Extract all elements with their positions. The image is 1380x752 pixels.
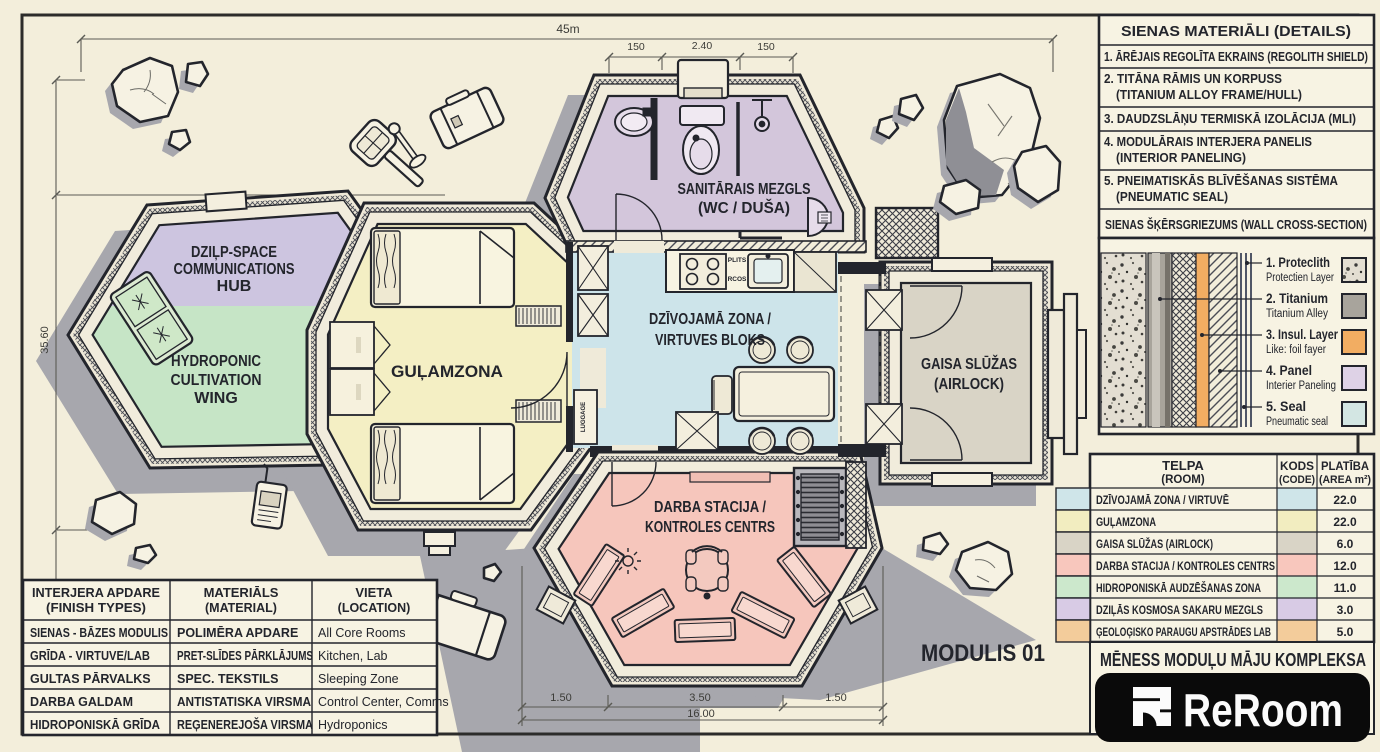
svg-text:DARBA STACIJA / KONTROLES CENT: DARBA STACIJA / KONTROLES CENTRS — [1096, 559, 1275, 573]
svg-text:GAISA SLŪŽAS (AIRLOCK): GAISA SLŪŽAS (AIRLOCK) — [1096, 536, 1213, 551]
svg-text:DZIĻP-SPACE: DZIĻP-SPACE — [191, 244, 277, 261]
svg-text:KONTROLES CENTRS: KONTROLES CENTRS — [645, 519, 775, 536]
svg-text:PLITS: PLITS — [728, 257, 747, 264]
svg-text:REĢENEREJOŠA VIRSMA: REĢENEREJOŠA VIRSMA — [177, 717, 313, 732]
svg-text:SIENAS - BĀZES MODULIS: SIENAS - BĀZES MODULIS — [30, 626, 168, 640]
svg-text:SIENAS ŠĶĒRSGRIEZUMS (WALL CRO: SIENAS ŠĶĒRSGRIEZUMS (WALL CROSS-SECTION… — [1105, 217, 1367, 232]
svg-text:HIDROPONISKĀ AUDZĒŠANAS ZONA: HIDROPONISKĀ AUDZĒŠANAS ZONA — [1096, 580, 1261, 595]
svg-text:(LOCATION): (LOCATION) — [338, 601, 411, 615]
svg-text:4. MODULĀRAIS INTERJERA PANELI: 4. MODULĀRAIS INTERJERA PANELIS — [1104, 135, 1312, 149]
svg-text:CULTIVATION: CULTIVATION — [171, 372, 262, 389]
svg-text:(ROOM): (ROOM) — [1161, 474, 1205, 486]
svg-text:PLATĪBA: PLATĪBA — [1321, 459, 1369, 473]
svg-text:WING: WING — [194, 390, 238, 407]
svg-text:GUĻAMZONA: GUĻAMZONA — [391, 362, 503, 381]
svg-text:MĒNESS MODUĻU MĀJU KOMPLEKSA: MĒNESS MODUĻU MĀJU KOMPLEKSA — [1100, 650, 1366, 670]
svg-text:4. Panel: 4. Panel — [1266, 363, 1312, 378]
svg-text:(INTERIOR PANELING): (INTERIOR PANELING) — [1116, 151, 1246, 165]
svg-text:COMMUNICATIONS: COMMUNICATIONS — [174, 261, 295, 278]
svg-text:2. TITĀNA RĀMIS UN KORPUSS: 2. TITĀNA RĀMIS UN KORPUSS — [1104, 72, 1282, 86]
svg-text:Hydroponics: Hydroponics — [318, 718, 387, 732]
svg-text:MODULIS 01: MODULIS 01 — [921, 640, 1045, 667]
svg-text:SANITĀRAIS MEZGLS: SANITĀRAIS MEZGLS — [678, 181, 811, 198]
svg-text:12.0: 12.0 — [1333, 559, 1357, 573]
svg-text:5. Seal: 5. Seal — [1266, 399, 1306, 414]
svg-text:5. PNEIMATISKĀS BLĪVĒŠANAS SIS: 5. PNEIMATISKĀS BLĪVĒŠANAS SISTĒMA — [1104, 173, 1338, 188]
svg-text:Pneumatic seal: Pneumatic seal — [1266, 416, 1328, 428]
svg-text:DZĪVOJAMĀ ZONA /: DZĪVOJAMĀ ZONA / — [649, 311, 772, 328]
svg-text:1. Proteclith: 1. Proteclith — [1266, 255, 1330, 270]
svg-text:(FINISH TYPES): (FINISH TYPES) — [46, 601, 146, 615]
svg-text:GUĻAMZONA: GUĻAMZONA — [1096, 515, 1156, 529]
svg-text:3. Insul. Layer: 3. Insul. Layer — [1266, 327, 1339, 342]
svg-text:HYDROPONIC: HYDROPONIC — [171, 353, 261, 370]
svg-text:VIETA: VIETA — [355, 585, 393, 600]
svg-text:45m: 45m — [556, 22, 579, 36]
svg-text:(PNEUMATIC SEAL): (PNEUMATIC SEAL) — [1116, 190, 1228, 204]
svg-text:LUGGAGE: LUGGAGE — [581, 402, 587, 432]
svg-text:(WC / DUŠA): (WC / DUŠA) — [698, 199, 790, 217]
svg-text:16.00: 16.00 — [687, 708, 715, 720]
svg-text:Interier Paneling: Interier Paneling — [1266, 380, 1336, 392]
svg-text:DZIĻĀS KOSMOSA SAKARU MEZGLS: DZIĻĀS KOSMOSA SAKARU MEZGLS — [1096, 603, 1263, 617]
svg-text:Titanium Alley: Titanium Alley — [1266, 308, 1328, 320]
svg-text:3.0: 3.0 — [1337, 603, 1354, 617]
svg-text:Control Center, Comms: Control Center, Comms — [318, 695, 449, 709]
svg-text:150: 150 — [627, 41, 645, 53]
svg-text:Kitchen, Lab: Kitchen, Lab — [318, 649, 388, 663]
svg-text:35.60: 35.60 — [39, 326, 51, 354]
svg-text:GULTAS PĀRVALKS: GULTAS PĀRVALKS — [30, 672, 151, 686]
svg-text:2. Titanium: 2. Titanium — [1266, 291, 1328, 306]
svg-text:PRET-SLĪDES PĀRKLĀJUMS: PRET-SLĪDES PĀRKLĀJUMS — [177, 649, 313, 663]
svg-text:3. DAUDZSLĀŅU TERMISKĀ IZOLĀCI: 3. DAUDZSLĀŅU TERMISKĀ IZOLĀCIJA (MLI) — [1104, 112, 1356, 126]
svg-text:22.0: 22.0 — [1333, 515, 1357, 529]
svg-text:HIDROPONISKĀ GRĪDA: HIDROPONISKĀ GRĪDA — [30, 718, 160, 732]
svg-text:GRĪDA - VIRTUVE/LAB: GRĪDA - VIRTUVE/LAB — [30, 649, 150, 663]
svg-text:ANTISTATISKA VIRSMA: ANTISTATISKA VIRSMA — [177, 695, 311, 709]
svg-text:Protectien Layer: Protectien Layer — [1266, 272, 1334, 284]
svg-text:11.0: 11.0 — [1334, 581, 1357, 595]
svg-text:3.50: 3.50 — [689, 692, 710, 704]
svg-text:(AIRLOCK): (AIRLOCK) — [934, 376, 1004, 393]
svg-text:KODS: KODS — [1280, 459, 1314, 473]
svg-text:1.50: 1.50 — [550, 692, 571, 704]
svg-text:DARBA GALDAM: DARBA GALDAM — [30, 695, 133, 709]
svg-text:1. ĀRĒJAIS REGOLĪTA EKRAINS (R: 1. ĀRĒJAIS REGOLĪTA EKRAINS (REGOLITH SH… — [1104, 50, 1368, 64]
svg-text:Like: foil fayer: Like: foil fayer — [1266, 344, 1326, 356]
svg-text:GAISA SLŪŽAS: GAISA SLŪŽAS — [921, 355, 1017, 373]
svg-text:All Core Rooms: All Core Rooms — [318, 626, 406, 640]
svg-text:DARBA STACIJA /: DARBA STACIJA / — [654, 499, 767, 516]
svg-text:ĢEOLOĢISKO PARAUGU APSTRĀDES L: ĢEOLOĢISKO PARAUGU APSTRĀDES LAB — [1096, 625, 1271, 639]
svg-text:(TITANIUM ALLOY FRAME/HULL): (TITANIUM ALLOY FRAME/HULL) — [1116, 88, 1302, 102]
svg-text:(MATERIAL): (MATERIAL) — [205, 601, 277, 615]
svg-text:(AREA m²): (AREA m²) — [1319, 474, 1371, 486]
svg-text:22.0: 22.0 — [1333, 493, 1357, 507]
svg-text:INTERJERA APDARE: INTERJERA APDARE — [32, 585, 160, 600]
svg-text:DZĪVOJAMĀ ZONA / VIRTUVĒ: DZĪVOJAMĀ ZONA / VIRTUVĒ — [1096, 493, 1229, 507]
svg-text:2.40: 2.40 — [692, 40, 713, 52]
svg-text:(CODE): (CODE) — [1279, 474, 1315, 486]
svg-text:HUB: HUB — [217, 278, 252, 295]
svg-text:Sleeping Zone: Sleeping Zone — [318, 672, 399, 686]
svg-text:150: 150 — [757, 41, 775, 53]
svg-text:RCOS: RCOS — [728, 276, 747, 283]
svg-text:TELPA: TELPA — [1162, 458, 1204, 473]
svg-text:POLIMĒRA APDARE: POLIMĒRA APDARE — [177, 626, 298, 640]
svg-text:SIENAS MATERIĀLI (DETAILS): SIENAS MATERIĀLI (DETAILS) — [1121, 23, 1351, 40]
svg-text:MATERIĀLS: MATERIĀLS — [204, 585, 279, 600]
svg-text:1.50: 1.50 — [825, 692, 846, 704]
svg-text:6.0: 6.0 — [1337, 537, 1354, 551]
svg-text:SPEC. TEKSTILS: SPEC. TEKSTILS — [177, 672, 278, 686]
svg-text:VIRTUVES BLOKS: VIRTUVES BLOKS — [655, 332, 765, 349]
svg-text:ReRoom: ReRoom — [1183, 684, 1343, 736]
svg-text:5.0: 5.0 — [1337, 625, 1354, 639]
